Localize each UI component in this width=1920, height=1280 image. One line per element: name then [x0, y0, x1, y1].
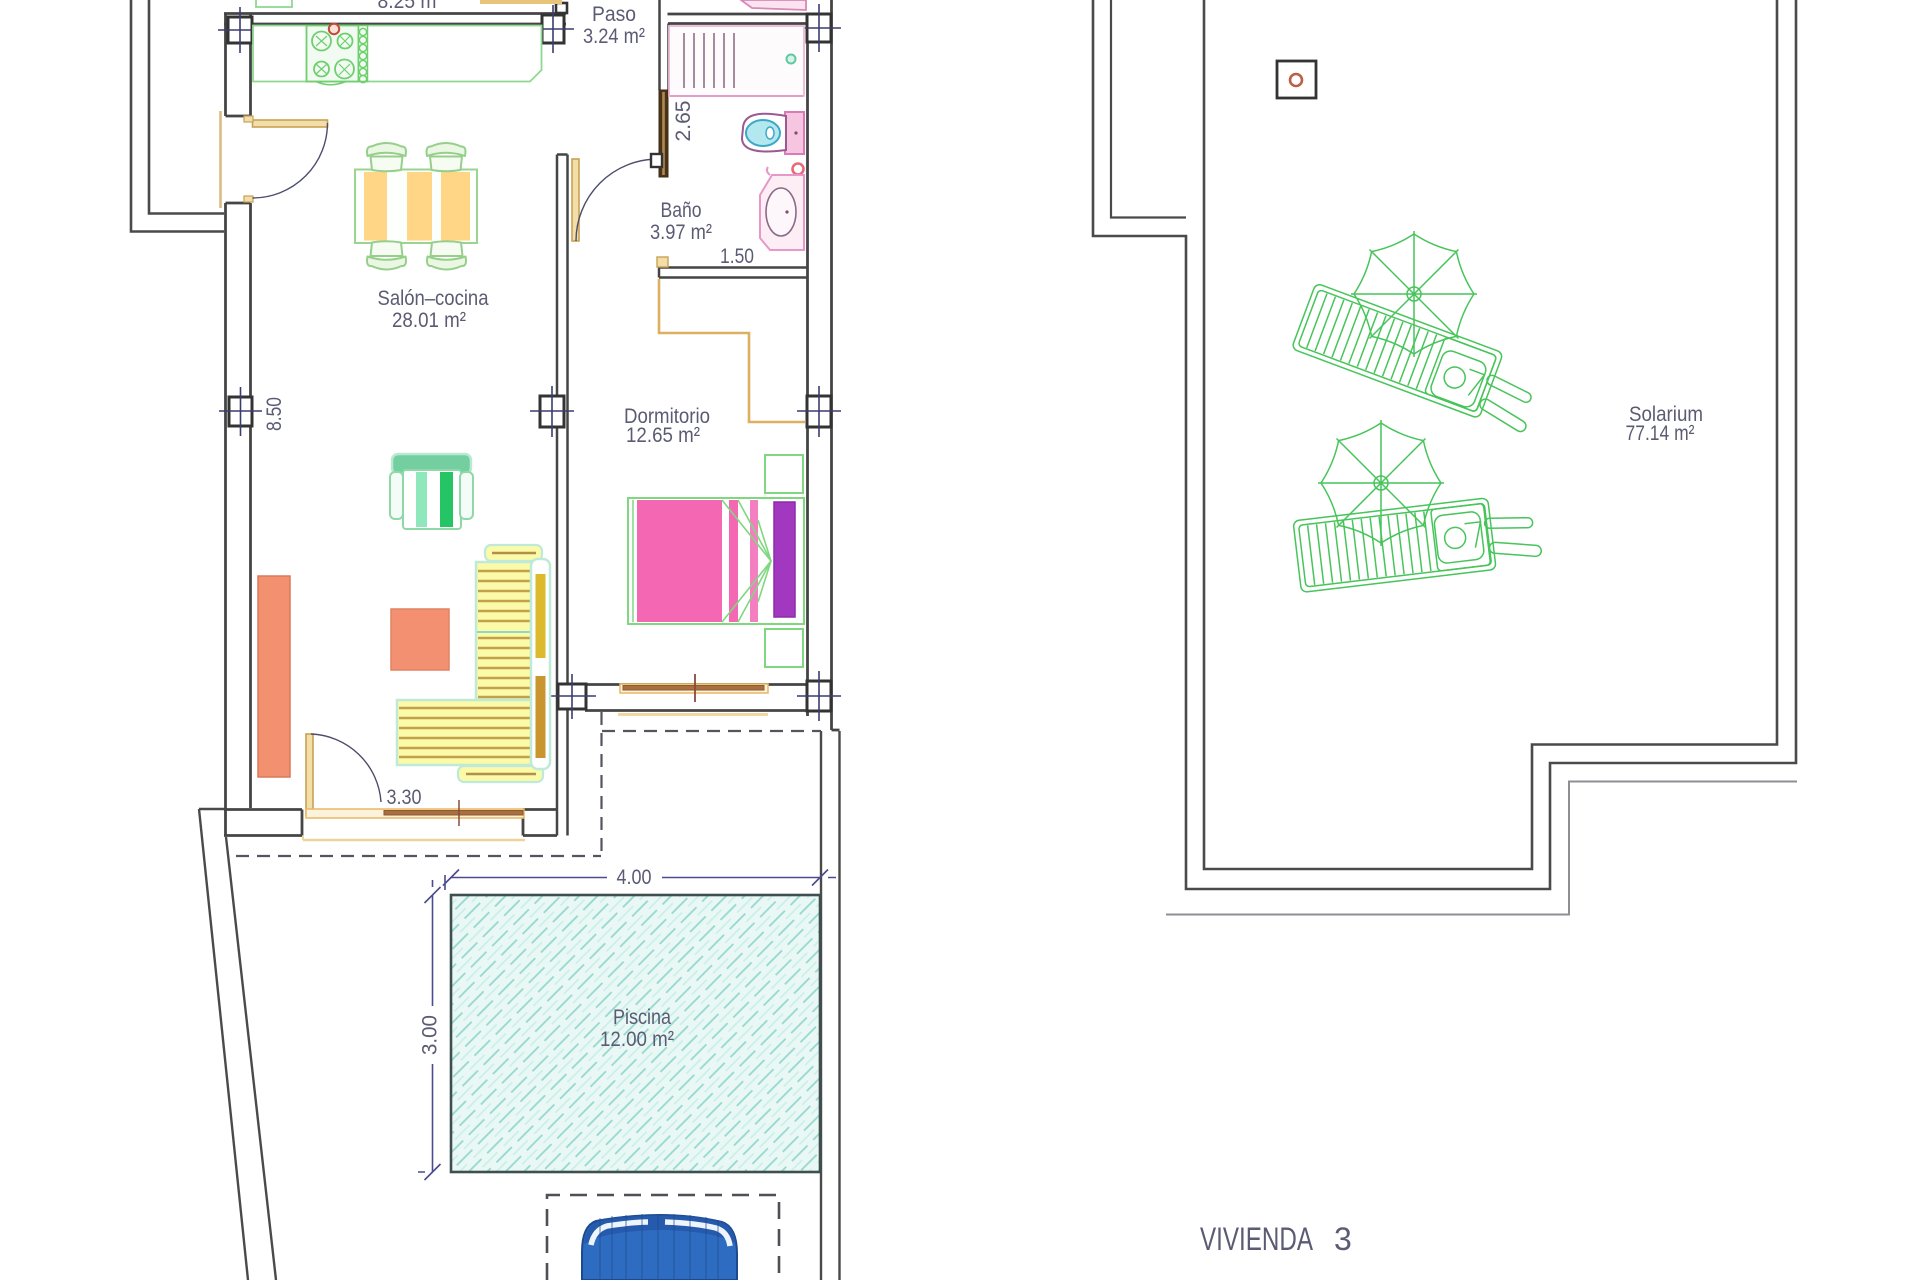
- svg-text:3.24 m²: 3.24 m²: [583, 24, 645, 48]
- svg-text:Paso: Paso: [592, 2, 636, 26]
- svg-text:8.25 m: 8.25 m: [378, 0, 437, 13]
- svg-text:12.00 m²: 12.00 m²: [600, 1027, 674, 1051]
- svg-text:1.50: 1.50: [720, 244, 754, 268]
- svg-text:Baño: Baño: [661, 198, 702, 222]
- svg-text:3.97 m²: 3.97 m²: [650, 220, 712, 244]
- svg-text:3.30: 3.30: [387, 785, 422, 809]
- svg-text:77.14 m²: 77.14 m²: [1626, 421, 1695, 445]
- svg-text:Salón–cocina: Salón–cocina: [378, 286, 489, 310]
- svg-text:VIVIENDA: VIVIENDA: [1200, 1221, 1313, 1257]
- svg-text:12.65 m²: 12.65 m²: [626, 423, 700, 447]
- svg-text:4.00: 4.00: [617, 865, 652, 889]
- svg-text:Piscina: Piscina: [613, 1005, 671, 1029]
- svg-text:8.50: 8.50: [262, 397, 286, 431]
- svg-text:2.65: 2.65: [671, 100, 695, 141]
- svg-text:3: 3: [1334, 1221, 1352, 1257]
- svg-text:28.01 m²: 28.01 m²: [392, 308, 466, 332]
- svg-text:3.00: 3.00: [418, 1015, 442, 1055]
